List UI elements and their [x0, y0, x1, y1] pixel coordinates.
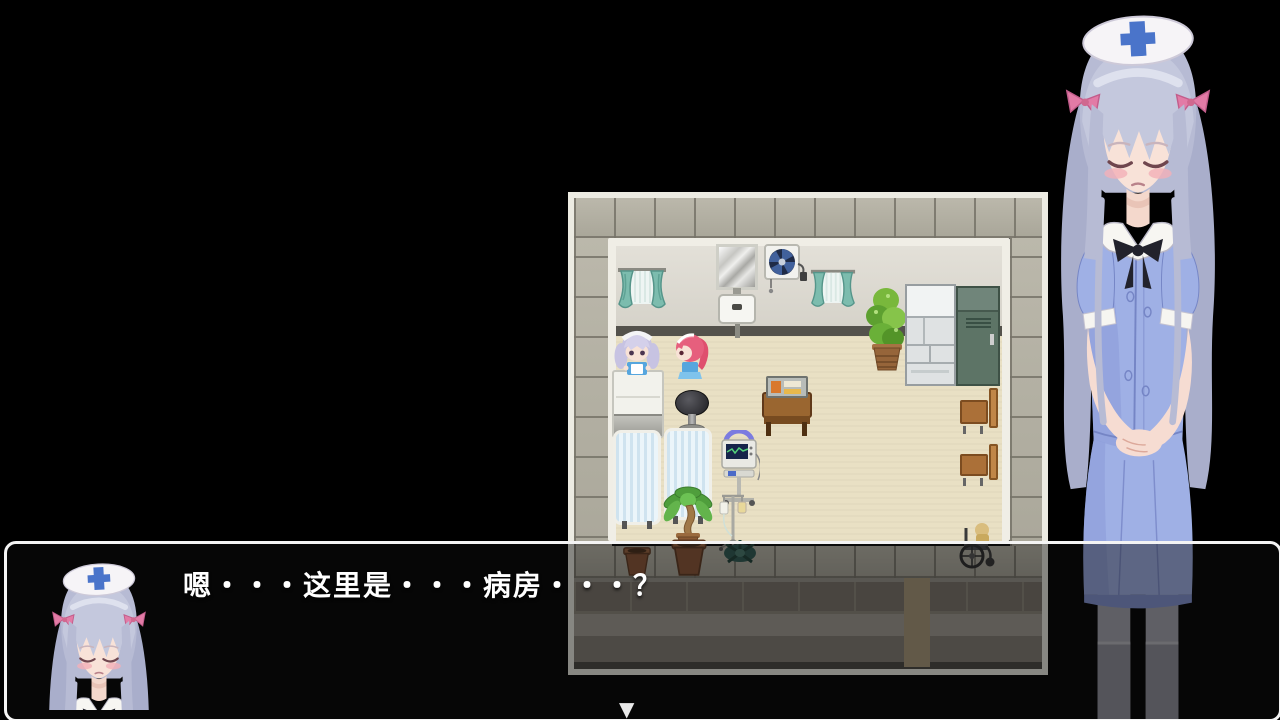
stone-wall-top [574, 198, 1042, 238]
continue-indicator[interactable]: ▼ [619, 699, 634, 719]
wall-mirror [716, 244, 758, 290]
privacy-screen-left [613, 430, 661, 525]
character-silver-maid [614, 326, 660, 382]
refrigerator [905, 284, 956, 386]
ventilation-fan [764, 244, 808, 296]
curtain-window-right [810, 266, 856, 316]
character-pink-maid [672, 330, 712, 382]
dialogue-text: 嗯・・・这里是・・・病房・・・？ [183, 564, 663, 604]
tall-potted-plant [864, 286, 908, 386]
game-screen: 嗯・・・这里是・・・病房・・・？ ▼ [0, 0, 1280, 720]
meal-table [758, 376, 816, 438]
wall-sink [714, 288, 760, 340]
stone-wall-left [574, 238, 612, 578]
dialogue-speaker-portrait [24, 552, 174, 710]
chair-upper [960, 388, 998, 432]
locker [956, 286, 1000, 386]
chair-lower [960, 444, 998, 484]
dialogue-box[interactable]: 嗯・・・这里是・・・病房・・・？ ▼ [4, 541, 1280, 720]
curtain-window-left [617, 266, 667, 316]
stone-wall-right [1010, 238, 1042, 578]
